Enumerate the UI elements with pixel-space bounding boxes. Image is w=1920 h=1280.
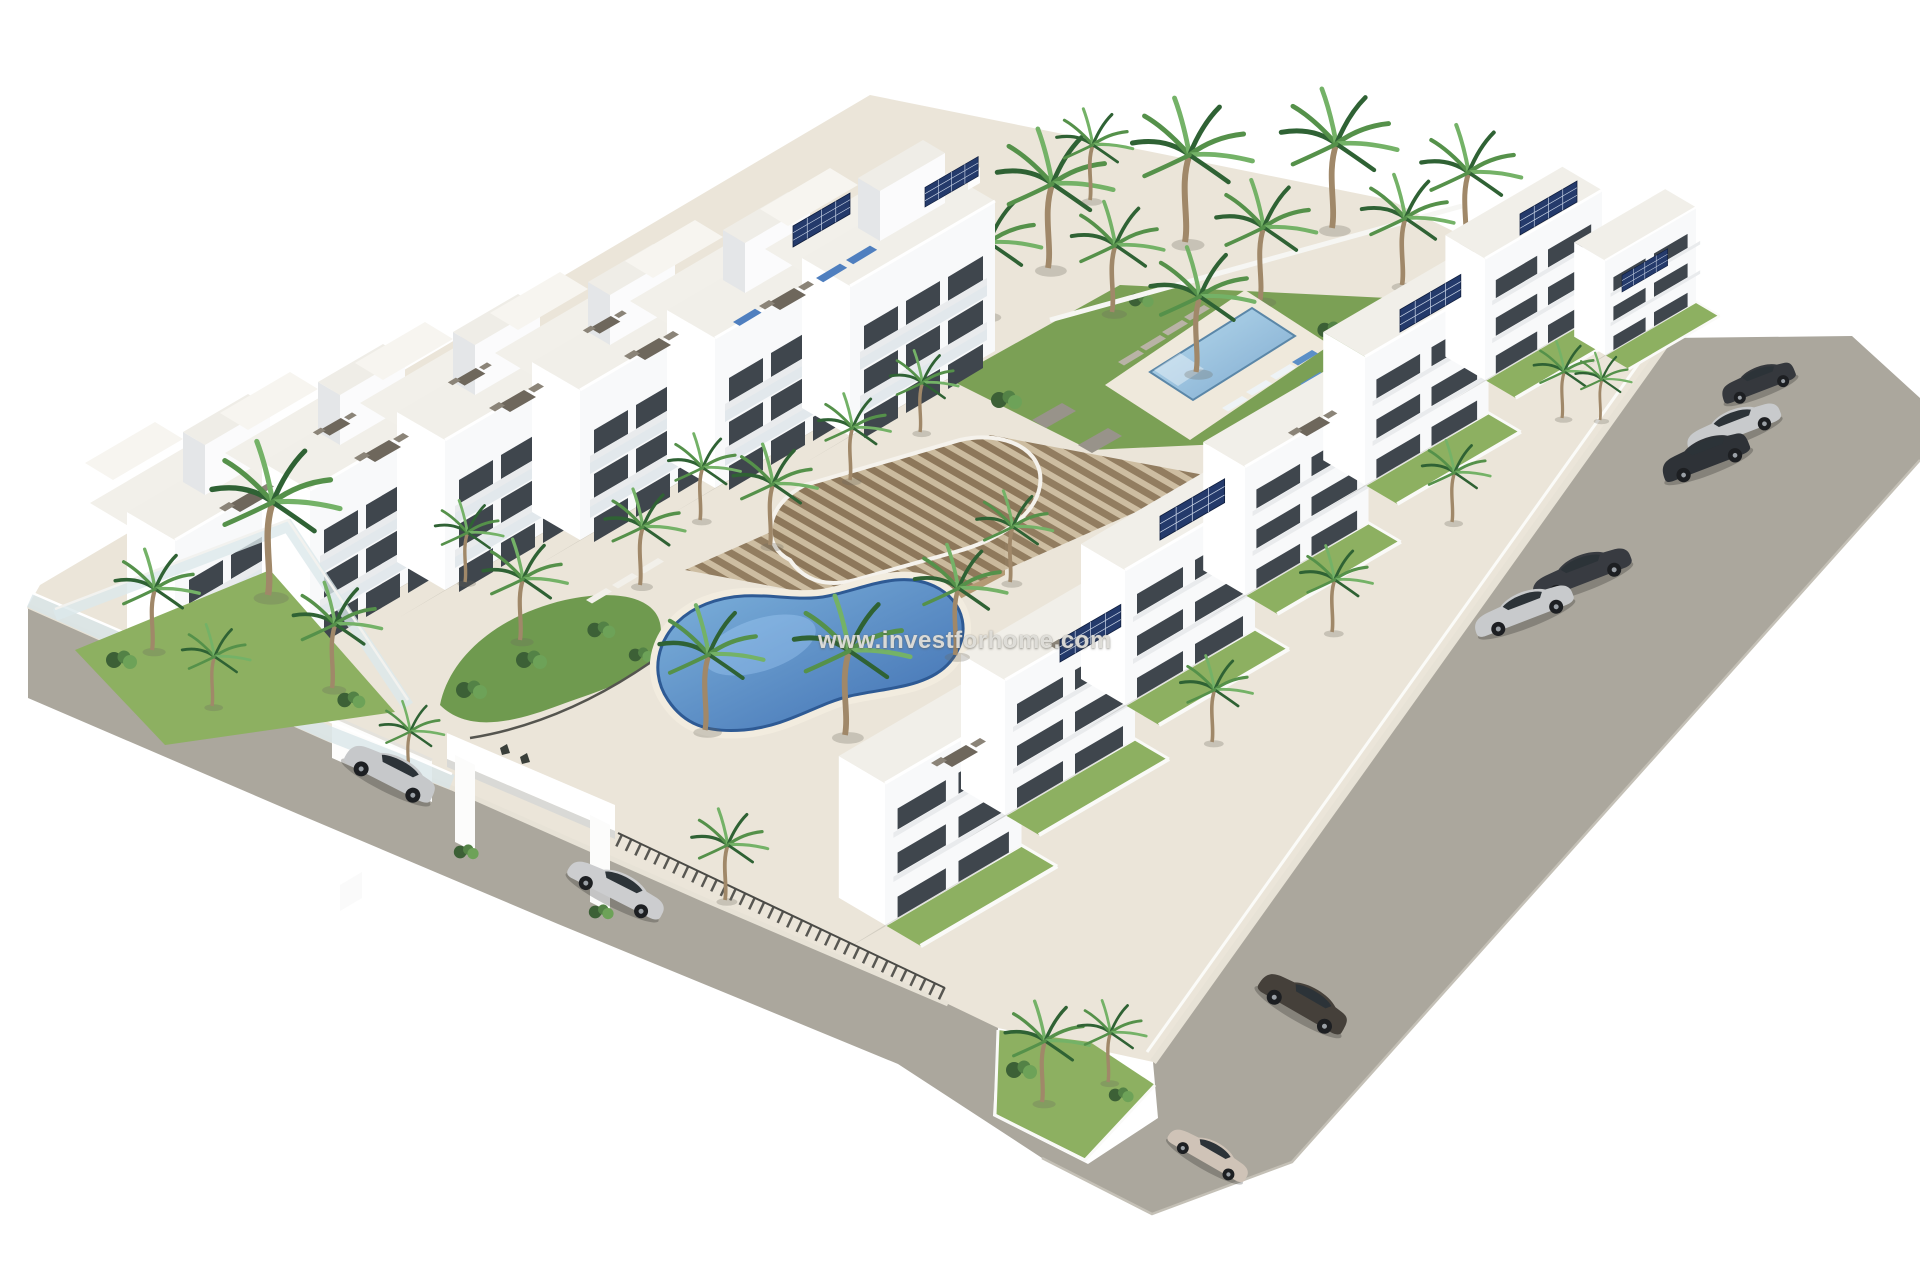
watermark: www.investforhome.com <box>818 628 1148 654</box>
utility-box <box>340 872 362 911</box>
render-canvas: www.investforhome.com <box>0 0 1920 1280</box>
